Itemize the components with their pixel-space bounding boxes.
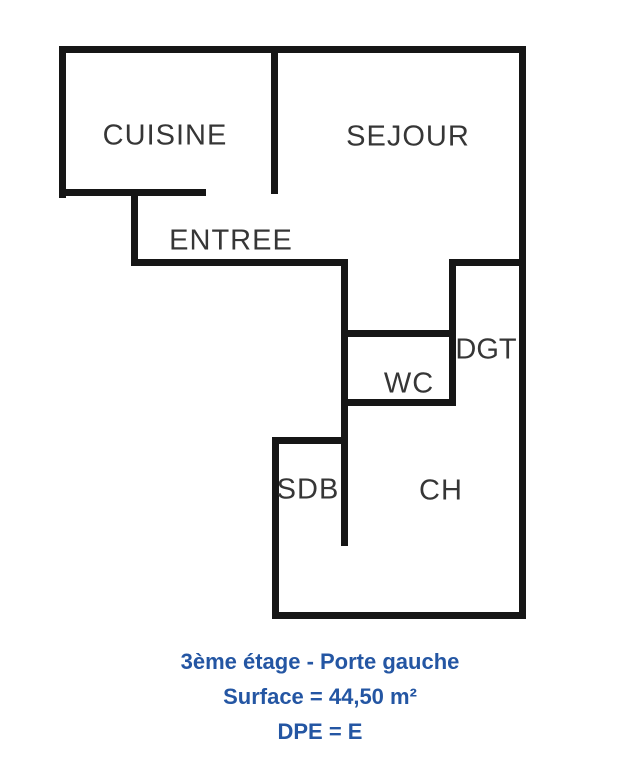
wall-wc-top bbox=[341, 330, 456, 337]
caption-floor-door: 3ème étage - Porte gauche bbox=[0, 644, 640, 679]
wall-entree-left bbox=[131, 189, 138, 266]
caption-surface: Surface = 44,50 m² bbox=[0, 679, 640, 714]
room-label-sejour: SEJOUR bbox=[346, 121, 470, 154]
wall-exterior-left-lower bbox=[272, 437, 279, 619]
wall-sdb-top bbox=[272, 437, 348, 444]
room-label-sdb: SDB bbox=[277, 474, 340, 507]
wall-entree-bottom bbox=[131, 259, 348, 266]
room-label-dgt: DGT bbox=[455, 334, 516, 367]
wall-exterior-right bbox=[519, 46, 526, 619]
wall-exterior-left-upper bbox=[59, 46, 66, 198]
wall-exterior-top bbox=[59, 46, 526, 53]
wall-cuisine-sejour-divider bbox=[271, 46, 278, 194]
wall-dgt-top bbox=[449, 259, 526, 266]
floor-plan-image: CUISINE SEJOUR ENTREE DGT WC SDB CH 3ème… bbox=[0, 0, 640, 771]
room-label-wc: WC bbox=[384, 368, 434, 401]
wall-exterior-bottom bbox=[272, 612, 526, 619]
caption-dpe: DPE = E bbox=[0, 714, 640, 749]
room-label-entree: ENTREE bbox=[169, 225, 293, 258]
caption-block: 3ème étage - Porte gauche Surface = 44,5… bbox=[0, 644, 640, 749]
room-label-cuisine: CUISINE bbox=[103, 120, 228, 153]
room-label-ch: CH bbox=[419, 475, 463, 508]
